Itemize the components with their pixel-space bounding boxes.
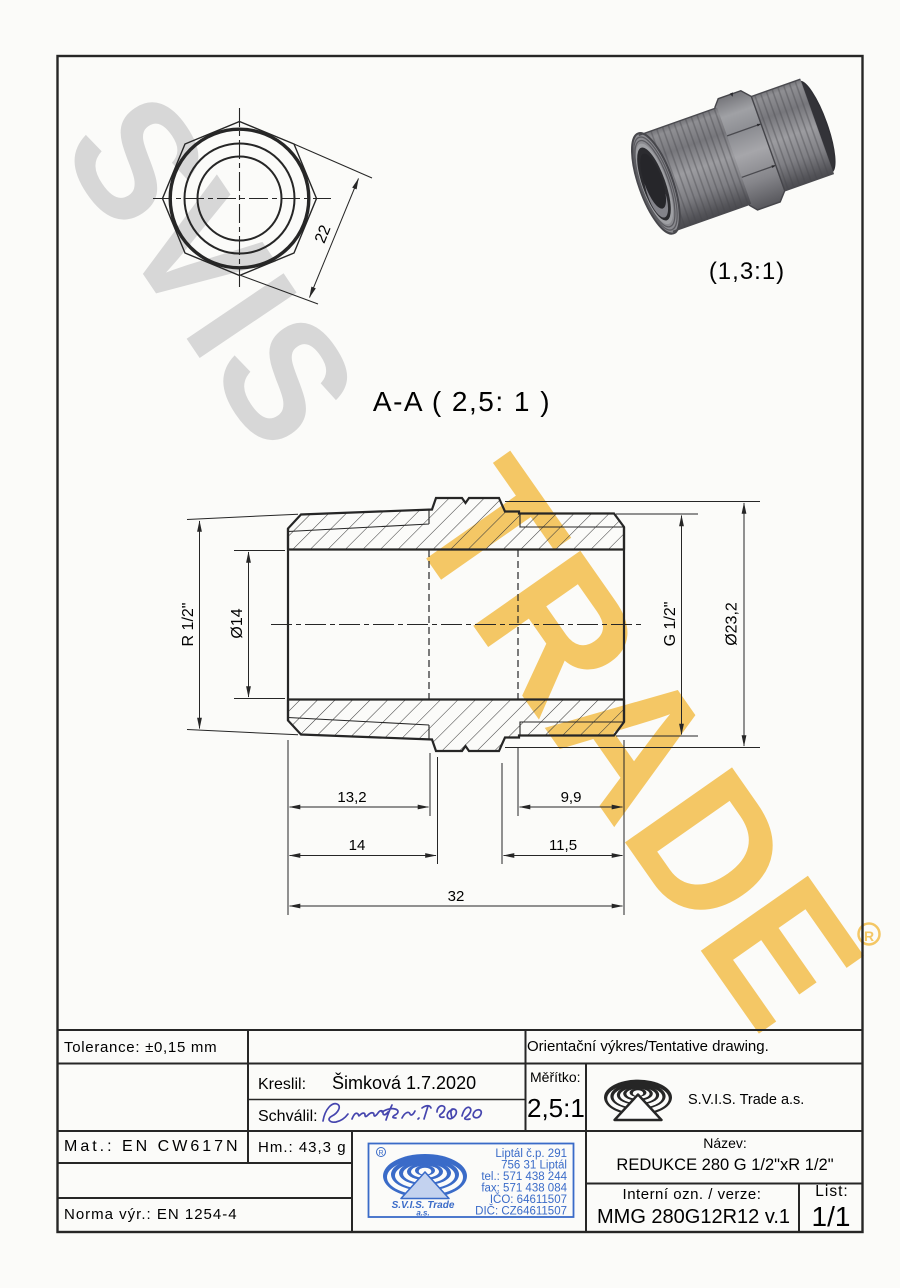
svg-text:Ø14: Ø14 (229, 608, 246, 638)
svg-text:MMG 280G12R12 v.1: MMG 280G12R12 v.1 (597, 1206, 790, 1228)
svg-text:9,9: 9,9 (561, 789, 582, 806)
svg-text:14: 14 (349, 837, 366, 854)
svg-text:REDUKCE 280 G 1/2"xR 1/2": REDUKCE 280 G 1/2"xR 1/2" (616, 1156, 833, 1174)
svg-text:Interní ozn. / verze:: Interní ozn. / verze: (623, 1186, 762, 1203)
svg-text:Hm.: 43,3 g: Hm.: 43,3 g (258, 1139, 347, 1156)
svg-text:Měřítko:: Měřítko: (530, 1069, 581, 1085)
svg-text:a.s.: a.s. (416, 1209, 429, 1218)
svg-text:Orientační výkres/Tentative dr: Orientační výkres/Tentative drawing. (527, 1038, 769, 1055)
svg-text:2,5:1: 2,5:1 (527, 1093, 585, 1123)
svg-text:DIČ: CZ64611507: DIČ: CZ64611507 (475, 1205, 567, 1218)
svg-text:List:: List: (815, 1183, 848, 1200)
svg-text:fax: 571 438 084: fax: 571 438 084 (481, 1183, 567, 1195)
svg-text:Mat.: EN CW617N: Mat.: EN CW617N (64, 1138, 241, 1155)
svg-text:A-A ( 2,5: 1 ): A-A ( 2,5: 1 ) (373, 386, 551, 417)
svg-text:IČO: 64611507: IČO: 64611507 (490, 1193, 567, 1206)
svg-text:G 1/2": G 1/2" (662, 602, 679, 647)
svg-text:S.V.I.S. Trade a.s.: S.V.I.S. Trade a.s. (688, 1092, 804, 1108)
svg-text:R 1/2": R 1/2" (180, 603, 197, 647)
svg-text:Liptál č.p. 291: Liptál č.p. 291 (495, 1148, 567, 1160)
svg-text:Tolerance: ±0,15 mm: Tolerance: ±0,15 mm (64, 1039, 217, 1056)
svg-text:Schválil:: Schválil: (258, 1108, 318, 1125)
svg-text:756 31 Liptál: 756 31 Liptál (501, 1160, 567, 1172)
svg-text:Ø23,2: Ø23,2 (724, 602, 741, 646)
svg-text:Název:: Název: (703, 1135, 747, 1151)
svg-text:13,2: 13,2 (337, 789, 366, 806)
svg-text:1/1: 1/1 (812, 1201, 851, 1232)
svg-text:tel.: 571 438 244: tel.: 571 438 244 (481, 1171, 567, 1183)
svg-text:R: R (864, 928, 874, 944)
svg-text:11,5: 11,5 (549, 837, 577, 854)
svg-text:Norma výr.: EN 1254-4: Norma výr.: EN 1254-4 (64, 1206, 238, 1223)
svg-text:32: 32 (448, 888, 465, 905)
svg-text:R: R (378, 1150, 383, 1157)
svg-text:(1,3:1): (1,3:1) (709, 258, 785, 285)
svg-text:Kreslil:: Kreslil: (258, 1076, 306, 1093)
svg-text:Šimková 1.7.2020: Šimková 1.7.2020 (332, 1072, 476, 1093)
